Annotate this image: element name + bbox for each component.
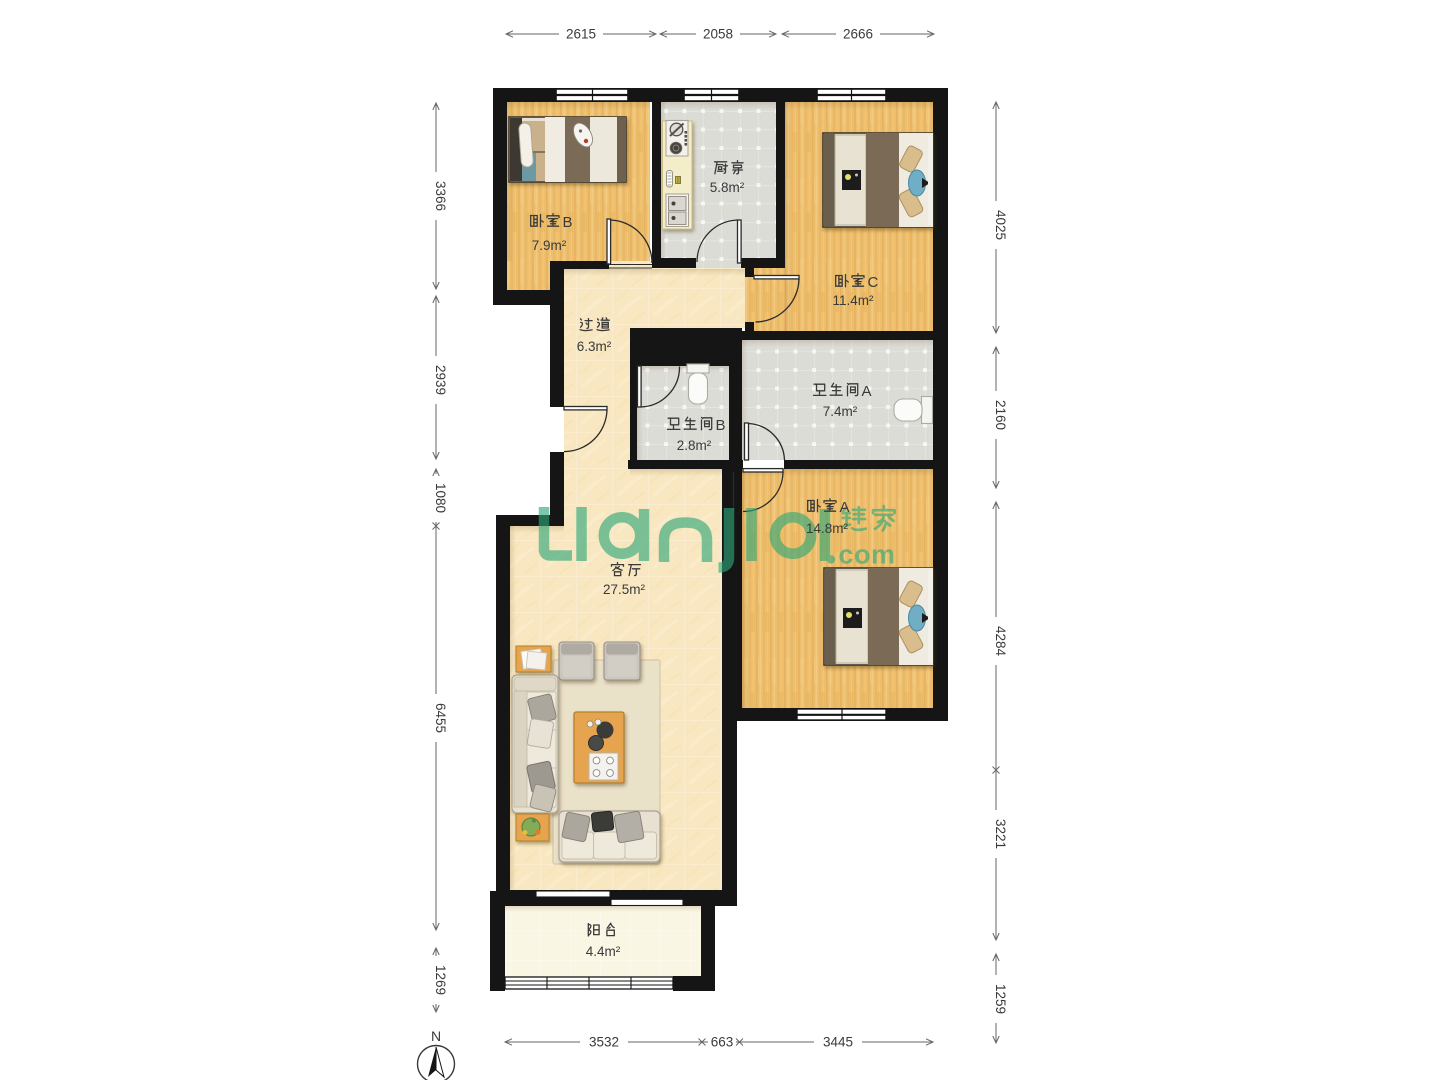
svg-text:6455: 6455 xyxy=(433,703,448,733)
svg-text:7.9m²: 7.9m² xyxy=(532,238,567,253)
svg-text:2160: 2160 xyxy=(993,400,1008,430)
svg-text:1080: 1080 xyxy=(433,483,448,513)
svg-text:3445: 3445 xyxy=(823,1035,853,1050)
svg-text:1269: 1269 xyxy=(433,965,448,995)
svg-text:C: C xyxy=(868,274,879,291)
svg-text:14.8m²: 14.8m² xyxy=(806,521,849,536)
svg-text:3532: 3532 xyxy=(589,1035,619,1050)
svg-text:6.3m²: 6.3m² xyxy=(577,339,612,354)
svg-text:A: A xyxy=(840,499,850,516)
svg-text:A: A xyxy=(862,383,872,400)
svg-text:B: B xyxy=(716,417,726,434)
svg-text:3366: 3366 xyxy=(433,181,448,211)
svg-text:B: B xyxy=(563,214,573,231)
svg-text:com: com xyxy=(839,540,896,570)
svg-text:2058: 2058 xyxy=(703,27,733,42)
svg-text:663: 663 xyxy=(711,1035,734,1050)
svg-text:3221: 3221 xyxy=(993,819,1008,849)
svg-text:11.4m²: 11.4m² xyxy=(832,293,874,308)
svg-text:5.8m²: 5.8m² xyxy=(710,180,745,195)
svg-text:1259: 1259 xyxy=(993,984,1008,1014)
svg-text:27.5m²: 27.5m² xyxy=(603,582,646,597)
svg-text:N: N xyxy=(431,1028,441,1044)
svg-text:7.4m²: 7.4m² xyxy=(823,404,858,419)
svg-text:4025: 4025 xyxy=(993,210,1008,240)
svg-text:4.4m²: 4.4m² xyxy=(586,944,621,959)
svg-text:4284: 4284 xyxy=(993,626,1008,657)
svg-text:2615: 2615 xyxy=(566,27,596,42)
svg-text:2939: 2939 xyxy=(433,365,448,395)
svg-text:2.8m²: 2.8m² xyxy=(677,438,712,453)
svg-text:2666: 2666 xyxy=(843,27,873,42)
